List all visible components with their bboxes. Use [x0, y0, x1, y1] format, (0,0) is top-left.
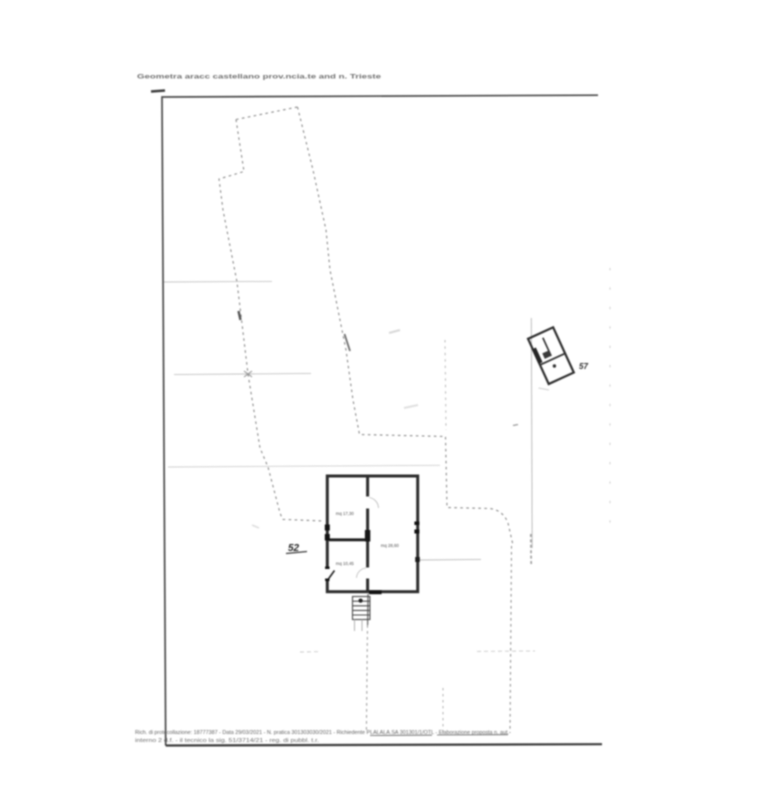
svg-text:Geometra aracc castellano prov: Geometra aracc castellano prov.ncia.te a… — [137, 74, 382, 81]
svg-text:mq 10,45: mq 10,45 — [336, 561, 354, 566]
svg-text:interno 2 d.f. - il tecnico la: interno 2 d.f. - il tecnico la sig. 51/3… — [135, 738, 320, 744]
svg-text:mq 28,60: mq 28,60 — [381, 543, 399, 548]
svg-text:mq 17,30: mq 17,30 — [336, 511, 354, 516]
svg-text:57: 57 — [579, 362, 588, 371]
